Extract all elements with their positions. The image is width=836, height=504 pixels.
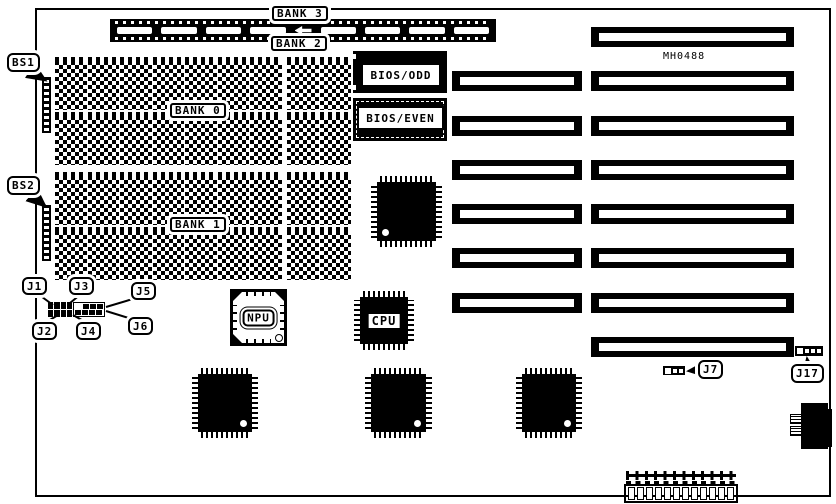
j1-label: J1 (22, 277, 47, 295)
bank3-label: BANK 3 (272, 6, 328, 21)
j6-label: J6 (128, 317, 153, 335)
j3-label: J3 (69, 277, 94, 295)
j17-label: J17 (791, 364, 824, 383)
j7-label: J7 (698, 360, 723, 379)
bank1-label: BANK 1 (170, 217, 226, 232)
bs1-label: BS1 (7, 53, 40, 72)
bs2-label: BS2 (7, 176, 40, 195)
callout-lines (0, 0, 836, 504)
bank0-label: BANK 0 (170, 103, 226, 118)
bank2-label: BANK 2 (271, 36, 327, 51)
j5-label: J5 (131, 282, 156, 300)
motherboard-diagram: BANK 3 BANK 2 BANK 0 BANK 1 BS1 BS2 BIOS… (0, 0, 836, 504)
j4-label: J4 (76, 322, 101, 340)
j2-label: J2 (32, 322, 57, 340)
